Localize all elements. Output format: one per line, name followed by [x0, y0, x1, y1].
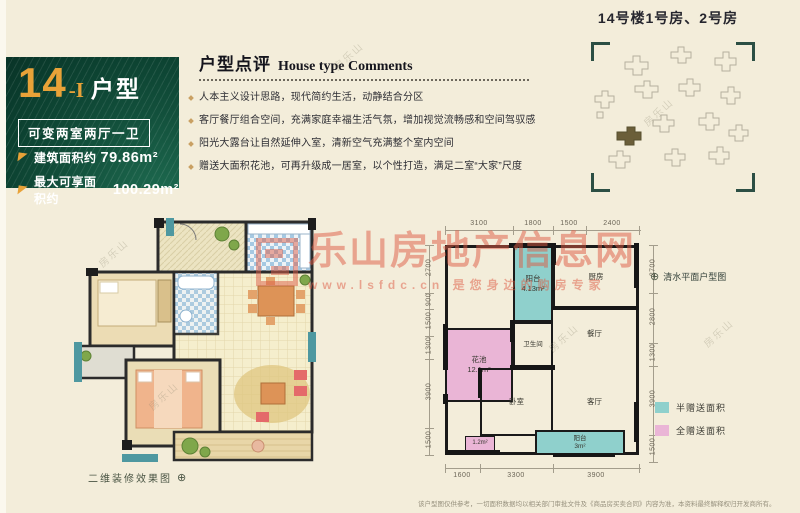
decorated-floor-plan: [62, 214, 320, 466]
comment-text: 阳光大露台让自然延伸入室，清新空气充满整个室内空间: [199, 138, 454, 150]
room-label: 厨房: [589, 272, 604, 282]
comments-title-en: House type Comments: [278, 59, 413, 75]
legend-label: 半赠送面积: [676, 401, 726, 414]
room-bedroom: 卧室: [480, 368, 553, 436]
decorated-floor-plan-image: [62, 214, 320, 466]
wall-segment: [510, 365, 555, 370]
area-label: 建筑面积约: [34, 149, 97, 166]
comment-bullet: 赠送大面积花池，可再升级成一居室，以个性打造，满足二室“大家”尺度: [189, 161, 537, 173]
room-balcony-bottom: 阳台 3m²: [535, 430, 625, 455]
legend: 半赠送面积 全赠送面积: [655, 401, 726, 447]
legend-label: 全赠送面积: [676, 424, 726, 437]
comment-text: 人本主义设计思路，现代简约生活，动静结合分区: [199, 92, 423, 104]
dim-tick: [425, 455, 434, 456]
wall-segment: [510, 320, 515, 342]
dim-label: 2800: [650, 299, 657, 335]
gold-flag-icon: [17, 185, 27, 195]
legend-swatch-half-gift: [655, 402, 669, 413]
unit-banner: 14 -I 户型 可变两室两厅一卫 建筑面积约 79.86m² 最大可享面积约 …: [6, 57, 179, 188]
dim-label: 3900: [426, 374, 433, 410]
room-living-label: 客厅: [587, 396, 602, 407]
dim-tick: [513, 226, 514, 235]
technical-floor-plan: 3100 1800 1500 2400 1600 3300 3900 2700 …: [405, 210, 675, 500]
dim-label: 2700: [426, 250, 433, 286]
unit-type-label: 户型: [91, 70, 141, 104]
wall-segment: [634, 402, 639, 442]
corner-bracket-icon: [591, 173, 610, 192]
wall-segment: [478, 368, 482, 398]
dim-tick: [649, 245, 658, 246]
dimension-line: [445, 230, 641, 231]
area-line: 最大可享面积约 100.29m²: [18, 173, 179, 207]
dim-label: 3300: [507, 472, 525, 479]
dim-label: 1500: [426, 422, 433, 458]
wall-segment: [509, 243, 555, 248]
bullet-icon: [188, 118, 194, 124]
comment-bullet: 客厅餐厅组合空间，充满家庭幸福生活气氛，增加视觉流畅感和空间驾驭感: [189, 115, 537, 127]
dim-tick: [649, 366, 658, 367]
unit-suffix: -I: [69, 78, 84, 103]
dim-tick: [553, 226, 554, 235]
dim-label: 2400: [603, 220, 621, 227]
wall-segment: [445, 450, 500, 455]
comments-title-cn: 户型点评: [199, 50, 271, 75]
wall-segment: [553, 306, 639, 310]
room-balcony-top: 阳台 4.13m²: [513, 245, 553, 322]
area-label: 最大可享面积约: [34, 173, 109, 207]
corner-bracket-icon: [736, 42, 755, 61]
dim-label: 3100: [470, 220, 488, 227]
left-plan-caption: 二维装修效果图 ⊕: [88, 470, 188, 485]
bullet-icon: [188, 141, 194, 147]
caption-text: 二维装修效果图: [88, 470, 172, 485]
unit-number: 14: [18, 59, 67, 107]
comments-section: 户型点评 House type Comments 人本主义设计思路，现代简约生活…: [189, 50, 537, 173]
wall-segment: [443, 324, 448, 370]
legend-row: 半赠送面积: [655, 401, 726, 414]
dim-tick: [480, 464, 481, 473]
area-value: 100.29m²: [113, 182, 179, 198]
highlighted-building: [617, 127, 641, 145]
dim-label: 1800: [524, 220, 542, 227]
dim-tick: [425, 293, 434, 294]
dim-label: 1600: [453, 472, 471, 479]
dim-tick: [639, 226, 640, 235]
dim-tick: [649, 293, 658, 294]
page: 14 -I 户型 可变两室两厅一卫 建筑面积约 79.86m² 最大可享面积约 …: [0, 0, 800, 513]
unit-title: 14 -I 户型: [18, 59, 141, 107]
bullet-icon: [188, 95, 194, 101]
legend-row: 全赠送面积: [655, 424, 726, 437]
right-plan-caption: ⊕ 清水平面户型图: [650, 270, 726, 283]
wall-segment: [634, 243, 639, 288]
room-area: 3m²: [574, 443, 585, 450]
wall-segment: [553, 453, 615, 457]
dim-label: 1500: [560, 220, 578, 227]
legend-swatch-full-gift: [655, 425, 669, 436]
dim-tick: [425, 428, 434, 429]
comment-text: 客厅餐厅组合空间，充满家庭幸福生活气氛，增加视觉流畅感和空间驾驭感: [199, 115, 536, 127]
dim-tick: [586, 226, 587, 235]
room-label: 卫生间: [523, 341, 543, 349]
dim-tick: [445, 226, 446, 235]
dim-tick: [425, 309, 434, 310]
dim-label: 3900: [587, 472, 605, 479]
caption-text: 清水平面户型图: [663, 270, 726, 283]
room-label: 阳台: [574, 435, 587, 442]
wall-segment: [551, 243, 556, 265]
dim-tick: [649, 462, 658, 463]
dotted-divider: [199, 79, 529, 81]
siteplan-map: [573, 34, 763, 196]
dim-tick: [649, 343, 658, 344]
disclaimer-text: 该户型图仅供参考，一切面积数据均以相关部门审批文件及《商品房买卖合同》内容为准，…: [418, 498, 778, 508]
comments-title: 户型点评 House type Comments: [189, 50, 537, 75]
room-bathroom: 卫生间: [513, 322, 553, 368]
corner-bracket-icon: [591, 42, 610, 61]
siteplan-title: 14号楼1号房、2号房: [573, 8, 763, 28]
variant-box: 可变两室两厅一卫: [18, 119, 150, 147]
compass-icon: ⊕: [650, 270, 659, 283]
dimension-line: [445, 468, 641, 469]
wall-segment: [443, 394, 448, 404]
compass-icon: ⊕: [177, 471, 188, 484]
room-label: 花池: [472, 355, 487, 365]
area-value: 79.86m²: [101, 150, 159, 166]
room-label: 阳台: [526, 274, 541, 284]
dim-tick: [553, 464, 554, 473]
diagonal-watermark: 房乐山: [700, 315, 737, 350]
room-dining-label: 餐厅: [587, 328, 602, 339]
room-kitchen: 厨房: [553, 245, 639, 309]
bullet-icon: [188, 164, 194, 170]
room-area: 1.2m²: [472, 440, 487, 448]
room-label: 卧室: [509, 397, 524, 407]
comment-bullet: 阳光大露台让自然延伸入室，清新空气充满整个室内空间: [189, 138, 537, 150]
room-area: 4.13m²: [521, 284, 544, 294]
gold-flag-icon: [17, 152, 27, 162]
comment-bullet: 人本主义设计思路，现代简约生活，动静结合分区: [189, 92, 537, 104]
dim-tick: [445, 464, 446, 473]
dim-tick: [639, 464, 640, 473]
corner-bracket-icon: [736, 173, 755, 192]
area-line: 建筑面积约 79.86m²: [18, 149, 158, 166]
comment-text: 赠送大面积花池，可再升级成一居室，以个性打造，满足二室“大家”尺度: [199, 161, 522, 173]
dim-tick: [425, 336, 434, 337]
dim-tick: [425, 359, 434, 360]
dim-tick: [425, 245, 434, 246]
